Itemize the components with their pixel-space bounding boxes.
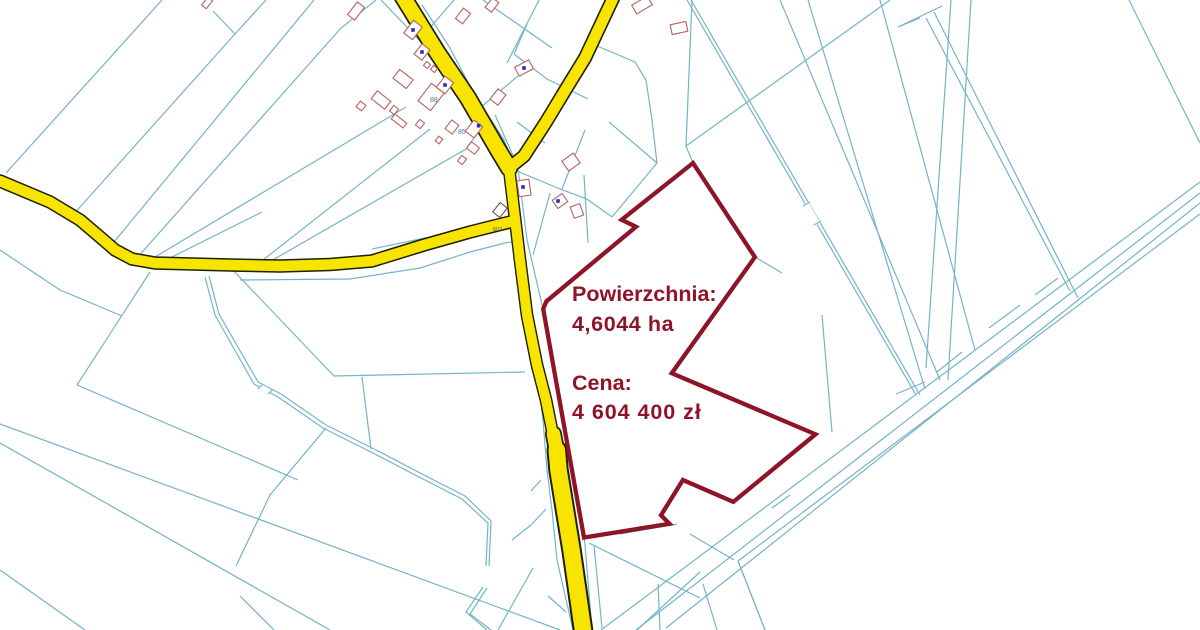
svg-text:85: 85	[458, 129, 466, 136]
svg-text:4,6044 ha: 4,6044 ha	[572, 312, 675, 336]
svg-text:602: 602	[493, 227, 502, 233]
svg-text:4 604 400 zł: 4 604 400 zł	[572, 400, 702, 424]
svg-text:88: 88	[430, 97, 438, 104]
svg-text:Powierzchnia:: Powierzchnia:	[572, 282, 717, 306]
svg-text:Cena:: Cena:	[572, 371, 632, 395]
